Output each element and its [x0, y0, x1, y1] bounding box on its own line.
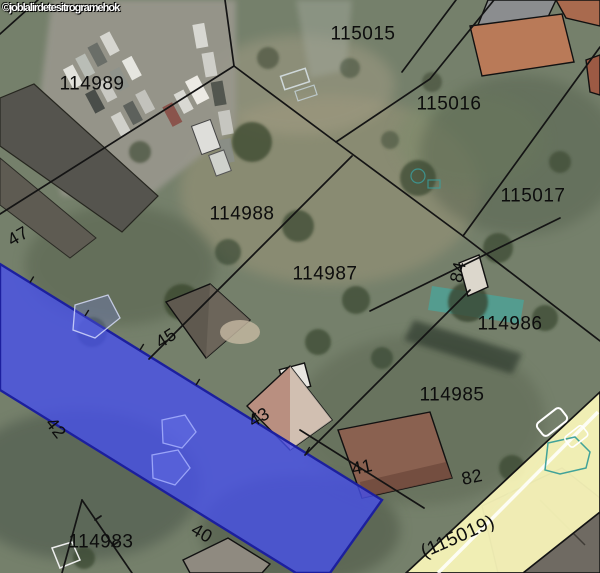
parcel-label-114985: 114985: [420, 386, 485, 405]
parcel-label-115016: 115016: [417, 95, 482, 114]
parcel-label-115015: 115015: [331, 25, 396, 44]
parcel-label-114989: 114989: [60, 75, 125, 94]
parcel-label-114986: 114986: [478, 315, 543, 334]
parcel-label-114987: 114987: [293, 265, 358, 284]
cadastral-map-view: 1150151150161150171149891149881149871149…: [0, 0, 600, 573]
parcel-label-114988: 114988: [210, 205, 275, 224]
house-number-82: 82: [460, 466, 484, 488]
house-number-84: 84: [447, 260, 469, 284]
watermark: ©joblalirdetesitrogramehok: [2, 2, 119, 14]
parcel-label-114983: 114983: [69, 533, 134, 552]
house-number-41: 41: [350, 456, 374, 478]
parcel-label-115017: 115017: [501, 187, 566, 206]
